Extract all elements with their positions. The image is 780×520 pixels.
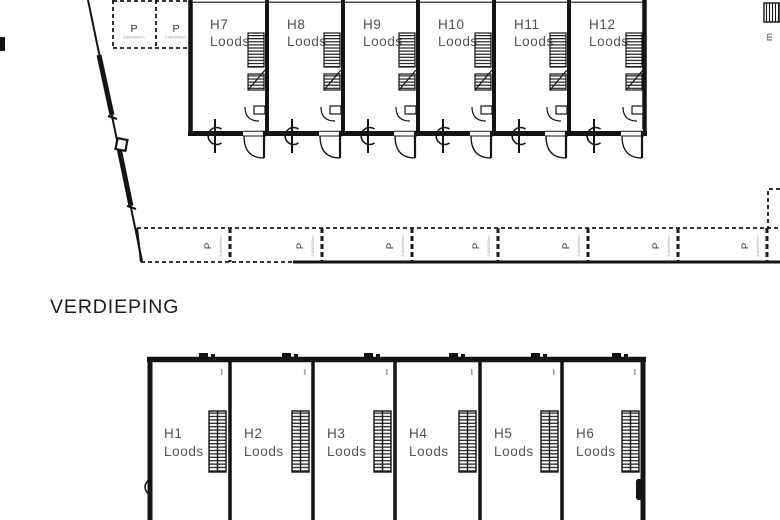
unit-h10: H10 Loods xyxy=(436,17,493,158)
parking-stall-label: P xyxy=(385,243,396,249)
parking-stall-dimension: 240x500cm xyxy=(311,235,315,256)
parking-stall-dimension: 240x500cm xyxy=(219,235,223,256)
unit-id-label: H1 xyxy=(164,426,182,441)
stair-icon xyxy=(470,33,493,158)
parking-stall-dimension: 240x500cm xyxy=(487,235,491,256)
unit-h8: H8 Loods xyxy=(285,17,342,158)
stair-icon xyxy=(282,353,309,472)
unit-h7: H7 Loods xyxy=(208,17,266,158)
boundary-marker xyxy=(116,138,128,151)
unit-id-label: H10 xyxy=(438,17,465,32)
bottom-building: H1 Loods H2 Loods H3 Loods H4 Loods H5 L… xyxy=(145,353,646,520)
boundary-dashed-corner xyxy=(768,189,780,228)
parking-stall-dimension: 240x500cm xyxy=(756,235,760,256)
stair-icon xyxy=(319,33,342,158)
unit-type-label: Loods xyxy=(210,34,250,49)
stair-icon xyxy=(531,353,558,472)
unit-id-label: H11 xyxy=(514,17,540,32)
stair-icon xyxy=(243,33,266,158)
unit-h2: H2 Loods xyxy=(244,353,309,472)
unit-id-label: H12 xyxy=(589,17,616,32)
unit-id-label: H4 xyxy=(409,426,427,441)
parking-row: P 240x500cm P 240x500cm P 240x500cm P 24… xyxy=(137,228,780,262)
unit-id-label: H3 xyxy=(327,426,345,441)
unit-id-label: H8 xyxy=(287,17,305,32)
unit-h4: H4 Loods xyxy=(409,353,476,472)
parking-stall-label: P xyxy=(130,23,137,35)
stair-icon xyxy=(364,353,391,472)
stair-icon xyxy=(449,353,476,472)
unit-h11: H11 Loods xyxy=(512,17,568,158)
unit-type-label: Loods xyxy=(327,444,367,459)
parking-stall-label: P xyxy=(203,243,214,249)
parking-top: P 240x500cm P 240x500cm xyxy=(113,0,191,48)
unit-h5: H5 Loods xyxy=(494,353,558,472)
unit-id-label: H6 xyxy=(576,426,594,441)
stair-icon xyxy=(621,33,644,158)
unit-h6: H6 Loods xyxy=(576,353,639,472)
floor-heading: VERDIEPING xyxy=(50,296,179,318)
left-edge-fragment xyxy=(0,37,5,51)
floor-plan: P 240x500cm P 240x500cm H7 Loods H8 Lood… xyxy=(0,0,780,520)
parking-stall-label: P xyxy=(651,243,662,249)
parking-stall-dimension: 240x500cm xyxy=(165,36,186,40)
unit-h12: H12 Loods xyxy=(587,17,644,158)
stair-icon xyxy=(612,353,639,472)
parking-stall-label: P xyxy=(740,243,751,249)
floor-plan-svg: P 240x500cm P 240x500cm H7 Loods H8 Lood… xyxy=(0,0,780,520)
door-leaf-right xyxy=(636,479,643,500)
parking-stall-label: P xyxy=(295,243,306,249)
edge-label: m xyxy=(764,33,775,41)
parking-stall-dimension: 240x500cm xyxy=(577,235,581,256)
unit-h9: H9 Loods xyxy=(361,17,417,158)
parking-stall-label: P xyxy=(561,243,572,249)
unit-type-label: Loods xyxy=(514,34,554,49)
unit-type-label: Loods xyxy=(409,444,449,459)
parking-stall-dimension: 240x500cm xyxy=(401,235,405,256)
unit-h1: H1 Loods xyxy=(164,353,226,472)
edge-stair-fragment: m xyxy=(764,3,780,41)
parking-stall-label: P xyxy=(471,243,482,249)
parking-stall-dimension: 240x500cm xyxy=(667,235,671,256)
unit-id-label: H5 xyxy=(494,426,512,441)
unit-h3: H3 Loods xyxy=(327,353,391,472)
unit-type-label: Loods xyxy=(589,34,629,49)
unit-type-label: Loods xyxy=(494,444,534,459)
unit-type-label: Loods xyxy=(164,444,204,459)
stair-icon xyxy=(545,33,568,158)
unit-type-label: Loods xyxy=(363,34,403,49)
unit-id-label: H7 xyxy=(210,17,228,32)
parking-stall-dimension: 240x500cm xyxy=(123,36,144,40)
unit-id-label: H2 xyxy=(244,426,262,441)
unit-id-label: H9 xyxy=(363,17,381,32)
unit-type-label: Loods xyxy=(244,444,284,459)
top-building: H7 Loods H8 Loods H9 Loods H10 Loods H11… xyxy=(188,0,647,158)
stair-icon xyxy=(394,33,417,158)
parking-stall-label: P xyxy=(172,23,179,35)
unit-type-label: Loods xyxy=(576,444,616,459)
unit-type-label: Loods xyxy=(287,34,327,49)
unit-type-label: Loods xyxy=(438,34,478,49)
